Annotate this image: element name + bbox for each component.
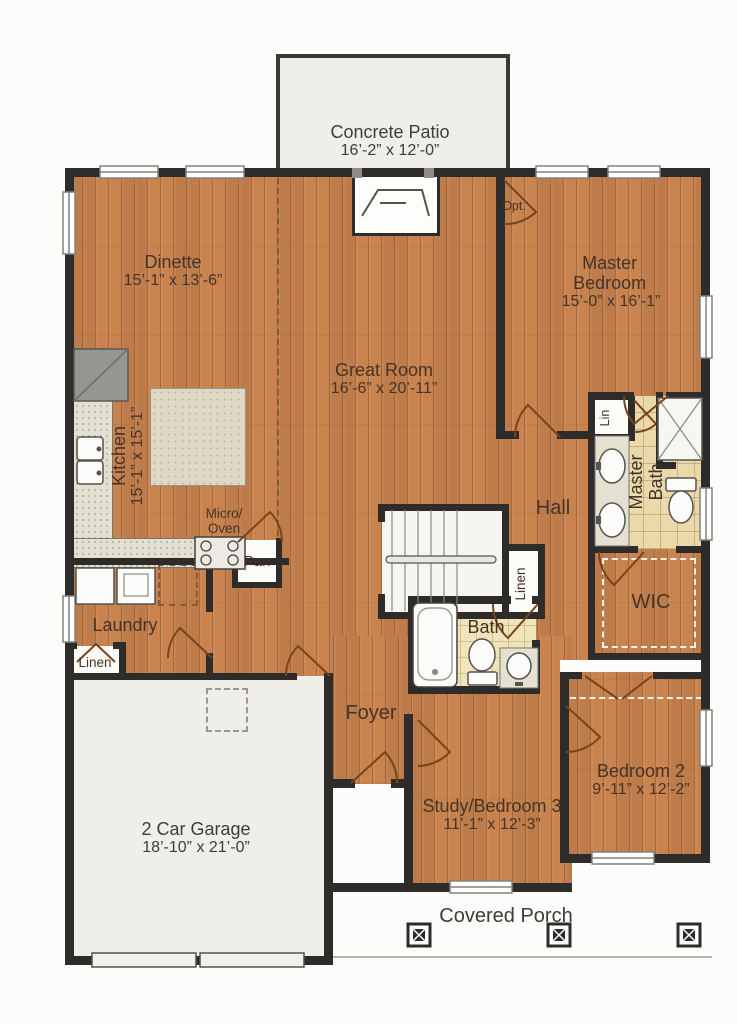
label-master-bedroom: Master Bedroom 15’-0” x 16’-1” xyxy=(562,253,661,311)
ceiling-break-dashed xyxy=(277,178,279,536)
label-foyer: Foyer xyxy=(345,702,396,724)
label-wic: WIC xyxy=(632,591,671,613)
porch-slab-edge xyxy=(333,956,712,958)
label-master-bath: Master Bath xyxy=(626,446,666,518)
room-name: Bath xyxy=(467,617,504,637)
laundry-optional-dashed xyxy=(158,564,198,606)
exterior-gap xyxy=(560,660,710,672)
room-name: Concrete Patio xyxy=(330,122,449,142)
room-name: Great Room xyxy=(331,360,437,380)
room-name: Bedroom 2 xyxy=(592,761,690,781)
room-name: Foyer xyxy=(345,702,396,724)
porch-post xyxy=(548,924,570,946)
room-name: 2 Car Garage xyxy=(141,819,250,839)
label-optional-door: Opt. xyxy=(502,197,526,215)
annotation-text: Micro/ xyxy=(206,506,243,521)
label-bath: Bath xyxy=(467,617,504,637)
room-dims: 18’-10” x 21’-0” xyxy=(141,839,250,857)
kitchen-counter-bottom xyxy=(73,538,235,568)
label-study-bedroom3: Study/Bedroom 3 11’-1” x 12’-3” xyxy=(422,796,561,834)
porch-post xyxy=(678,924,700,946)
label-micro-oven: Micro/ Oven xyxy=(206,506,243,536)
room-dims: 15’-1” x 15’-1” xyxy=(129,407,147,506)
room-dims: 15’-0” x 16’-1” xyxy=(562,293,661,311)
closet-name: Linen xyxy=(513,567,528,600)
annotation-text: Oven xyxy=(206,521,243,536)
closet-name: Pan xyxy=(244,553,271,570)
label-bedroom2: Bedroom 2 9’-11” x 12’-2” xyxy=(592,761,690,799)
room-dims: 9’-11” x 12’-2” xyxy=(592,781,690,799)
closet-name: Lin xyxy=(598,410,612,427)
room-name: Study/Bedroom 3 xyxy=(422,796,561,816)
label-covered-porch: Covered Porch xyxy=(439,905,572,927)
label-great-room: Great Room 16’-6” x 20’-11” xyxy=(331,360,437,398)
room-name: Dinette xyxy=(124,252,223,272)
porch-post xyxy=(408,924,430,946)
room-name: Master Bath xyxy=(626,446,666,518)
room-dims: 16’-2” x 12’-0” xyxy=(330,142,449,160)
room-name: Laundry xyxy=(92,615,157,635)
label-laundry: Laundry xyxy=(92,615,157,635)
room-dims: 15’-1” x 13’-6” xyxy=(124,272,223,290)
floor-stairs xyxy=(382,508,504,614)
closet-name: Linen xyxy=(78,655,111,670)
garage-optional-dashed xyxy=(206,688,248,732)
label-dinette: Dinette 15’-1” x 13’-6” xyxy=(124,252,223,290)
label-hall: Hall xyxy=(536,497,570,519)
kitchen-island xyxy=(150,388,246,486)
porch-posts xyxy=(408,924,700,946)
room-name: Kitchen xyxy=(109,407,129,506)
room-name: Hall xyxy=(536,497,570,519)
label-lin-master: Lin xyxy=(596,410,614,427)
label-linen-laundry: Linen xyxy=(78,654,111,672)
room-dims: 16’-6” x 20’-11” xyxy=(331,380,437,398)
label-pantry: Pan xyxy=(244,553,271,571)
floor-plan: Concrete Patio 16’-2” x 12’-0” Dinette 1… xyxy=(0,0,737,1024)
room-dims: 11’-1” x 12’-3” xyxy=(422,816,561,834)
label-linen-hall: Linen xyxy=(512,567,530,600)
room-name: WIC xyxy=(632,591,671,613)
patio-sliding-door xyxy=(352,172,440,236)
room-name: Covered Porch xyxy=(439,905,572,927)
annotation-text: Opt. xyxy=(502,199,526,213)
patio-slab xyxy=(276,54,510,182)
kitchen-counter-left xyxy=(73,348,113,566)
label-garage: 2 Car Garage 18’-10” x 21’-0” xyxy=(141,819,250,857)
label-kitchen: Kitchen 15’-1” x 15’-1” xyxy=(109,407,147,506)
label-concrete-patio: Concrete Patio 16’-2” x 12’-0” xyxy=(330,122,449,160)
room-name: Master Bedroom xyxy=(562,253,658,293)
bedroom2-closet-shelf-dashed xyxy=(570,697,702,699)
